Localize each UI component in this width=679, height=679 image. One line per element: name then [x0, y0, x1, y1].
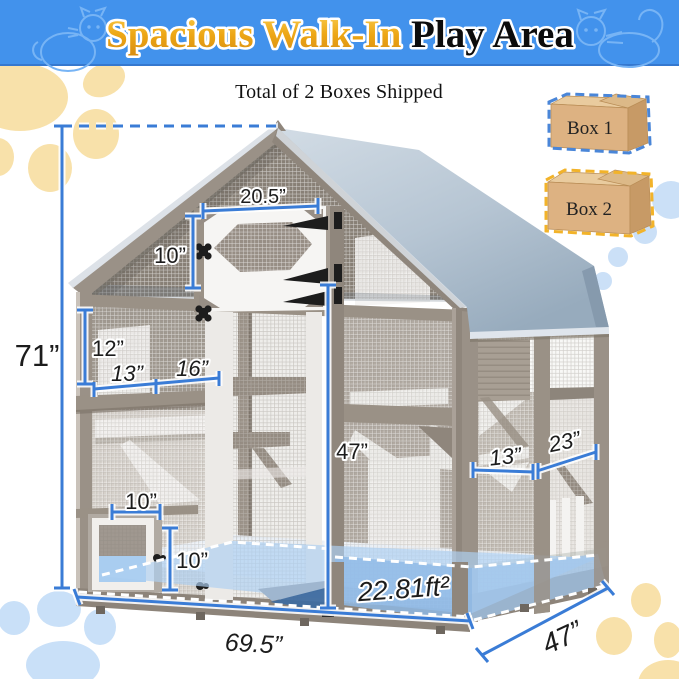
svg-text:71”: 71”: [15, 338, 60, 373]
svg-text:16”: 16”: [176, 356, 209, 381]
svg-text:Box 2: Box 2: [566, 199, 612, 220]
svg-text:Total of 2 Boxes Shipped: Total of 2 Boxes Shipped: [235, 81, 443, 103]
svg-text:Spacious Walk-In Play Area: Spacious Walk-In Play Area: [106, 13, 574, 56]
svg-text:10”: 10”: [176, 548, 208, 573]
svg-text:13”: 13”: [111, 361, 144, 386]
svg-text:10”: 10”: [125, 489, 157, 514]
svg-text:47”: 47”: [336, 439, 368, 464]
svg-text:12”: 12”: [92, 336, 124, 361]
svg-text:Box 1: Box 1: [567, 118, 613, 139]
svg-text:13”: 13”: [488, 442, 524, 470]
svg-text:10”: 10”: [154, 243, 186, 268]
svg-text:20.5”: 20.5”: [240, 186, 286, 208]
svg-text:69.5”: 69.5”: [224, 629, 284, 660]
